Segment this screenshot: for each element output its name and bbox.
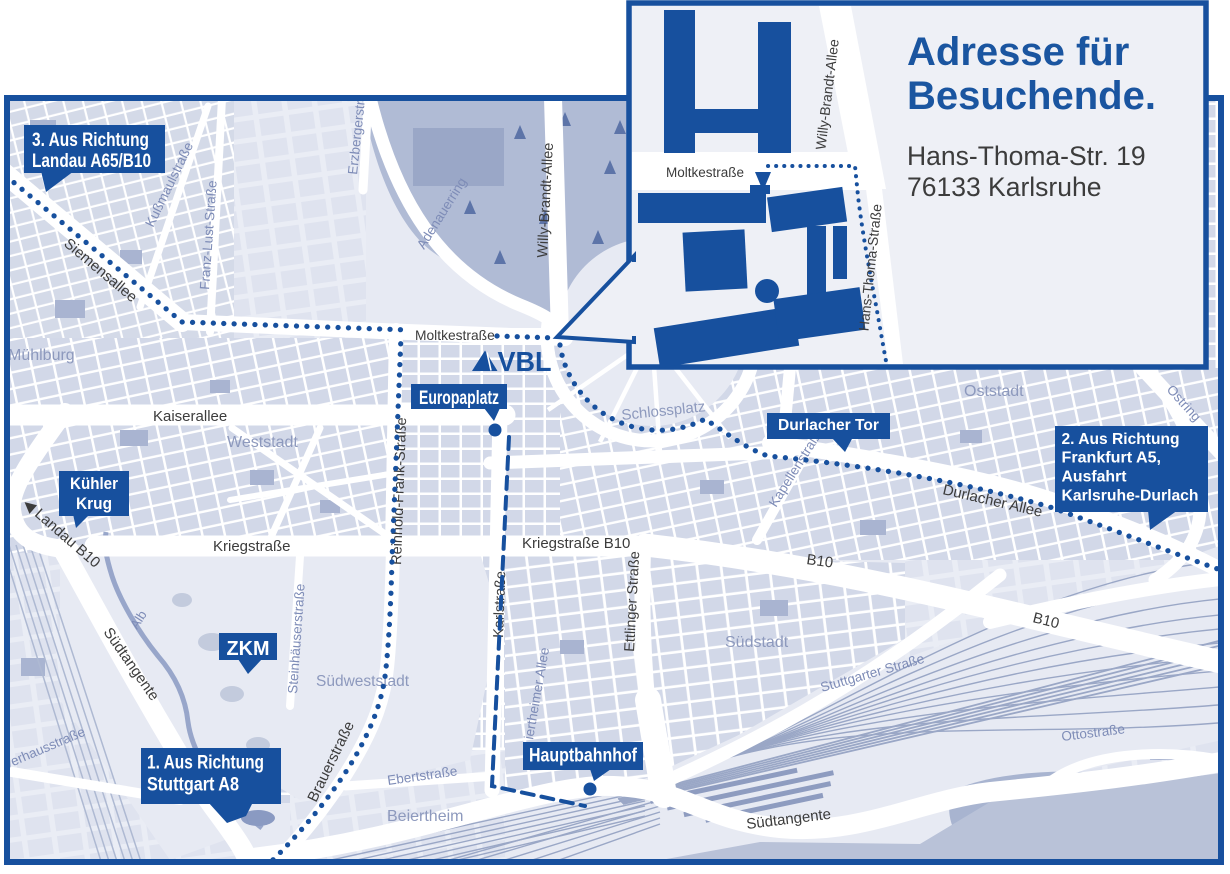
svg-text:2. Aus Richtung: 2. Aus Richtung: [1062, 431, 1180, 448]
svg-text:Mühlburg: Mühlburg: [8, 347, 75, 364]
svg-text:ZKM: ZKM: [227, 638, 270, 660]
svg-text:Moltkestraße: Moltkestraße: [666, 165, 744, 180]
svg-text:Karlsruhe-Durlach: Karlsruhe-Durlach: [1062, 488, 1199, 505]
svg-text:Adresse für: Adresse für: [907, 30, 1129, 74]
svg-text:Krug: Krug: [76, 494, 112, 513]
svg-text:Kühler: Kühler: [70, 474, 118, 493]
svg-text:Weststadt: Weststadt: [227, 434, 298, 451]
svg-text:Hauptbahnhof: Hauptbahnhof: [529, 746, 638, 767]
svg-text:Beiertheim: Beiertheim: [387, 808, 463, 825]
svg-text:Moltkestraße: Moltkestraße: [415, 328, 495, 343]
svg-text:VBL: VBL: [498, 346, 552, 377]
svg-text:Oststadt: Oststadt: [964, 383, 1024, 400]
svg-text:3. Aus Richtung: 3. Aus Richtung: [32, 130, 149, 151]
svg-text:Ausfahrt: Ausfahrt: [1062, 469, 1128, 486]
svg-text:Landau A65/B10: Landau A65/B10: [32, 151, 151, 172]
svg-text:Südstadt: Südstadt: [725, 634, 789, 651]
svg-text:Europaplatz: Europaplatz: [419, 388, 499, 409]
svg-text:Durlacher Tor: Durlacher Tor: [778, 417, 879, 434]
svg-text:Hans-Thoma-Str. 19: Hans-Thoma-Str. 19: [907, 141, 1146, 171]
svg-text:Besuchende.: Besuchende.: [907, 74, 1156, 118]
svg-text:Frankfurt A5,: Frankfurt A5,: [1062, 450, 1162, 467]
svg-text:Kaiserallee: Kaiserallee: [153, 408, 227, 425]
svg-text:76133 Karlsruhe: 76133 Karlsruhe: [907, 172, 1101, 202]
svg-text:Stuttgart A8: Stuttgart A8: [147, 775, 239, 796]
svg-text:Kriegstraße B10: Kriegstraße B10: [522, 535, 630, 552]
svg-text:Südweststadt: Südweststadt: [316, 673, 410, 690]
svg-text:Kriegstraße: Kriegstraße: [213, 538, 291, 555]
svg-text:1. Aus Richtung: 1. Aus Richtung: [147, 753, 264, 774]
